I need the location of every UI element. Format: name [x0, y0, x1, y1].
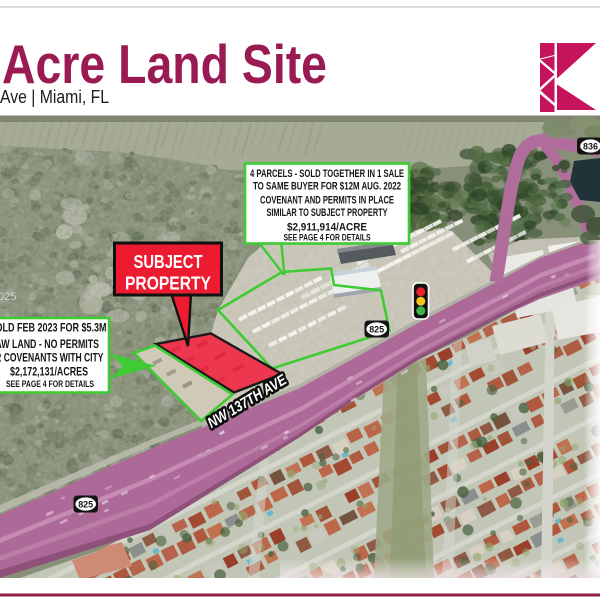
svg-text:RAW LAND - NO PERMITS: RAW LAND - NO PERMITS — [0, 339, 99, 351]
svg-text:SUBJECT: SUBJECT — [134, 252, 203, 272]
svg-text:4 PARCELS - SOLD TOGETHER IN 1: 4 PARCELS - SOLD TOGETHER IN 1 SALE — [250, 168, 404, 180]
svg-text:SOLD FEB 2023 FOR $5.3M: SOLD FEB 2023 FOR $5.3M — [0, 323, 107, 335]
svg-text:SEE PAGE 4 FOR DETAILS: SEE PAGE 4 FOR DETAILS — [284, 233, 371, 243]
svg-text:Ave | Miami, FL: Ave | Miami, FL — [0, 87, 109, 107]
svg-text:$2,172,131/ACRES: $2,172,131/ACRES — [10, 367, 88, 379]
svg-text:TO SAME BUYER FOR $12M AUG. 20: TO SAME BUYER FOR $12M AUG. 2022 — [253, 181, 401, 193]
svg-text:COVENANT AND PERMITS IN PLACE: COVENANT AND PERMITS IN PLACE — [260, 195, 394, 207]
svg-text:SEE PAGE 4 FOR DETAILS: SEE PAGE 4 FOR DETAILS — [6, 379, 94, 389]
svg-text:825: 825 — [369, 325, 385, 336]
svg-text:825: 825 — [78, 500, 94, 511]
svg-text:Acre Land Site: Acre Land Site — [2, 33, 327, 95]
svg-text:OR COVENANTS WITH CITY: OR COVENANTS WITH CITY — [0, 353, 104, 365]
svg-text:836: 836 — [583, 142, 598, 153]
svg-text:2025: 2025 — [0, 291, 16, 303]
svg-text:PROPERTY: PROPERTY — [125, 274, 211, 294]
svg-text:SIMILAR TO SUBJECT PROPERTY: SIMILAR TO SUBJECT PROPERTY — [267, 207, 388, 219]
